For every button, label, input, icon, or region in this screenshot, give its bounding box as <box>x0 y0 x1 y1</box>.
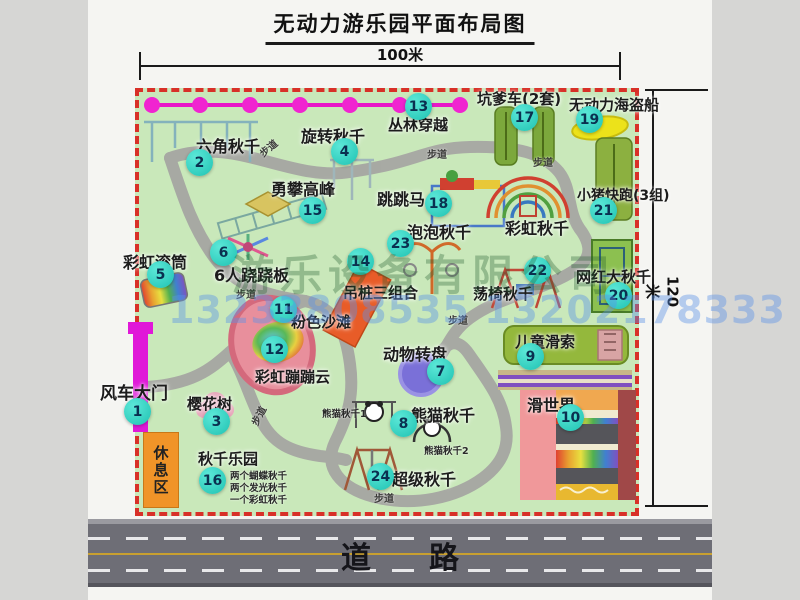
badge-2: 2 <box>186 149 213 176</box>
road-label: 道路 <box>88 533 712 577</box>
label-bounce-cloud: 彩虹蹦蹦云 <box>255 366 330 387</box>
badge-19: 19 <box>576 106 603 133</box>
badge-16: 16 <box>199 467 226 494</box>
road-curb-top <box>88 519 712 524</box>
note-panda1: 熊猫秋千1 <box>322 406 367 420</box>
badge-12: 12 <box>261 336 288 363</box>
footpath-label-3: 步道 <box>533 154 553 169</box>
label-panda-swing: 熊猫秋千 <box>411 402 475 426</box>
page-title: 无动力游乐园平面布局图 <box>266 8 535 45</box>
badge-18: 18 <box>425 190 452 217</box>
badge-3: 3 <box>203 408 230 435</box>
label-pig-run: 小猪快跑(3组) <box>577 185 670 205</box>
footpath-label-7: 步道 <box>374 490 394 505</box>
label-bubble-swing: 泡泡秋千 <box>407 219 471 243</box>
label-swing-park: 秋千乐园 <box>198 448 258 469</box>
badge-9: 9 <box>517 343 544 370</box>
rest-area-label: 休息区 <box>151 445 172 496</box>
badge-15: 15 <box>299 197 326 224</box>
badge-1: 1 <box>124 398 151 425</box>
label-super-swing: 超级秋千 <box>392 466 456 490</box>
badge-7: 7 <box>427 358 454 385</box>
note-swing-park-3: 一个彩虹秋千 <box>230 492 287 506</box>
badge-10: 10 <box>557 404 584 431</box>
road-curb-bottom <box>88 583 712 587</box>
width-dimension-label: 100米 <box>340 44 460 65</box>
badge-13: 13 <box>405 93 432 120</box>
label-rainbow-arch-swing: 彩虹秋千 <box>505 215 569 239</box>
badge-8: 8 <box>390 410 417 437</box>
badge-17: 17 <box>511 104 538 131</box>
badge-21: 21 <box>590 197 617 224</box>
note-panda2: 熊猫秋千2 <box>424 443 469 457</box>
badge-5: 5 <box>147 261 174 288</box>
footpath-label-2: 步道 <box>427 146 447 161</box>
label-climbing-peak: 勇攀高峰 <box>271 176 335 200</box>
badge-24: 24 <box>367 463 394 490</box>
badge-4: 4 <box>331 138 358 165</box>
rest-area: 休息区 <box>143 432 179 508</box>
screenshot-stage: 无动力游乐园平面布局图 100米 120米 <box>0 0 800 600</box>
label-jump-horse: 跳跳马 <box>377 186 425 210</box>
watermark-phone: 13233808535 13202178333 <box>168 288 786 332</box>
bottom-road: 道路 <box>88 519 712 587</box>
